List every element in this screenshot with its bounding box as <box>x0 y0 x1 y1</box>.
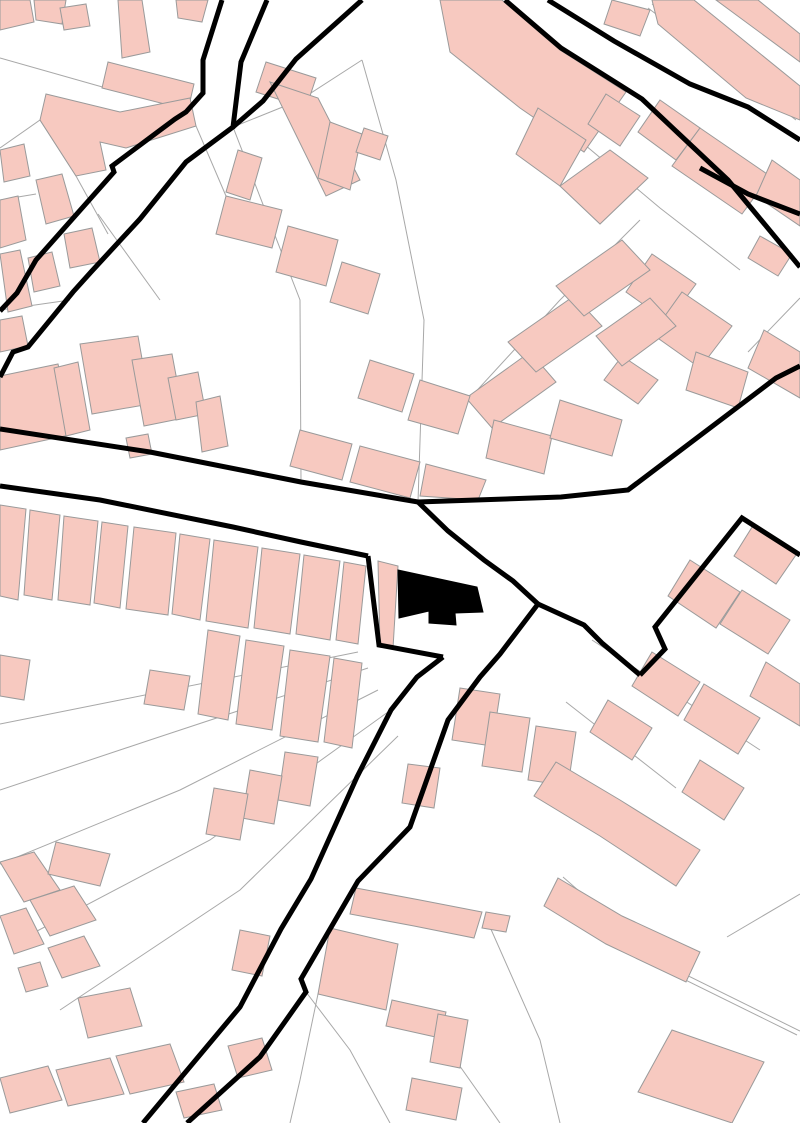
building-footprints-layer <box>0 0 800 1123</box>
building-footprint <box>78 988 142 1038</box>
building-footprint <box>276 226 338 286</box>
building-footprint <box>686 352 748 408</box>
building-footprint <box>48 842 110 886</box>
road-edge <box>0 0 222 311</box>
building-footprint <box>604 356 658 404</box>
building-footprint <box>60 4 90 30</box>
building-footprint <box>0 655 30 700</box>
building-footprint <box>48 936 100 978</box>
building-footprint <box>756 160 800 226</box>
building-footprint <box>0 1066 62 1113</box>
building-footprint <box>486 420 552 474</box>
building-footprint <box>358 360 414 412</box>
building-footprint <box>604 0 650 36</box>
parcel-line <box>486 918 560 1123</box>
building-footprint <box>550 400 622 456</box>
building-footprint <box>0 144 30 182</box>
building-footprint <box>216 196 282 248</box>
building-footprint <box>632 652 700 716</box>
building-footprint <box>126 434 152 458</box>
building-footprint <box>0 505 26 600</box>
building-footprint <box>18 962 48 992</box>
building-footprint <box>408 380 470 434</box>
cadastral-map <box>0 0 800 1123</box>
building-footprint <box>254 548 300 634</box>
building-footprint <box>0 196 26 248</box>
building-footprint <box>196 396 228 452</box>
building-footprint <box>356 128 388 160</box>
building-footprint <box>350 888 482 938</box>
building-footprint <box>280 650 330 742</box>
parcel-line <box>306 992 390 1123</box>
building-footprint <box>58 516 98 605</box>
building-footprint <box>232 930 270 976</box>
building-footprint <box>336 562 366 644</box>
building-footprint <box>206 540 258 628</box>
building-footprint <box>144 670 190 710</box>
road-edge <box>538 604 640 675</box>
building-footprint <box>378 561 398 648</box>
building-footprint <box>534 762 700 886</box>
building-footprint <box>198 630 240 720</box>
building-footprint <box>748 236 792 276</box>
building-footprint <box>126 527 176 615</box>
building-footprint <box>172 534 210 620</box>
building-footprint <box>318 928 398 1010</box>
building-footprint <box>748 330 800 398</box>
building-footprint <box>420 464 486 500</box>
building-footprint <box>176 0 208 22</box>
building-footprint <box>330 262 380 314</box>
building-footprint <box>296 555 340 640</box>
building-footprint <box>482 912 510 932</box>
building-footprint <box>226 150 262 200</box>
building-footprint <box>36 174 74 224</box>
building-footprint <box>638 1030 764 1123</box>
parcel-line <box>290 994 318 1123</box>
building-footprint <box>118 0 150 58</box>
highlighted-subject-building[interactable] <box>398 570 483 625</box>
building-footprint <box>56 1058 124 1106</box>
building-footprint <box>236 640 284 730</box>
building-footprint <box>0 0 34 30</box>
building-footprint <box>684 684 760 754</box>
building-footprint <box>242 770 282 824</box>
building-footprint <box>64 228 100 268</box>
building-footprint <box>278 752 318 806</box>
building-footprint <box>482 712 530 772</box>
parcel-line <box>727 894 800 937</box>
building-footprint <box>544 878 700 982</box>
building-footprint <box>290 430 352 480</box>
building-footprint <box>228 1038 272 1078</box>
building-footprint <box>94 522 128 608</box>
building-footprint <box>24 510 60 600</box>
building-footprint <box>206 788 248 840</box>
building-footprint <box>406 1078 462 1120</box>
building-footprint <box>590 700 652 760</box>
building-footprint <box>0 908 44 954</box>
cadastral-map-page <box>0 0 800 1123</box>
subject-building-layer <box>398 570 483 625</box>
building-footprint <box>28 252 60 292</box>
building-footprint <box>682 760 744 820</box>
